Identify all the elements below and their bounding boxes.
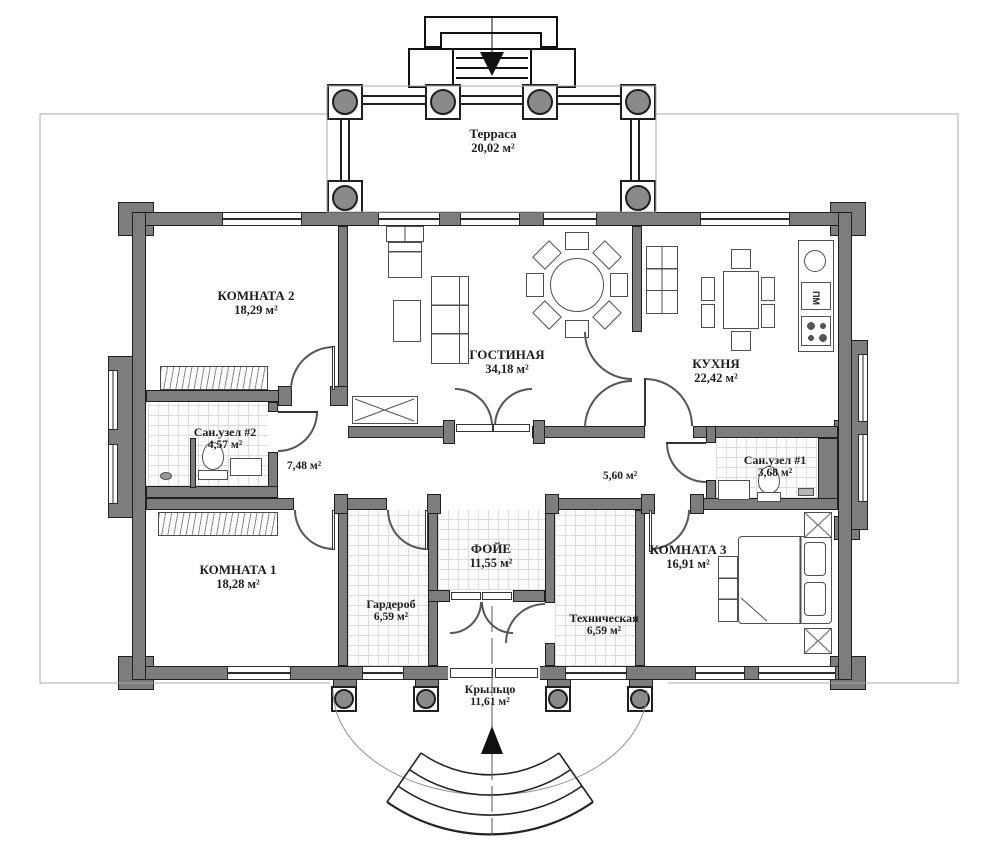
door-arc-living-double — [455, 388, 493, 426]
window — [758, 666, 836, 680]
door-arc-room1 — [294, 510, 334, 550]
room-name: Сан.узел #1 — [744, 453, 806, 467]
room-area: 11,55 м² — [470, 556, 513, 571]
pillow — [804, 582, 826, 616]
wall-corridor-top — [348, 426, 455, 438]
wall-foyer-bottom — [428, 590, 450, 602]
sink — [230, 458, 262, 476]
room-name: Техническая — [569, 611, 638, 625]
chair — [610, 273, 628, 297]
terrace-railing — [340, 120, 350, 180]
window — [695, 666, 745, 680]
terrace-column-circle — [625, 185, 651, 211]
wall-bath1-left — [706, 426, 716, 443]
room-area: 3,68 м² — [744, 467, 806, 481]
tech-floor — [555, 510, 635, 666]
room-area: 4,57 м² — [194, 439, 256, 453]
room-label-porch: Крыльцо 11,61 м² — [465, 682, 516, 710]
chair — [731, 249, 751, 269]
hall-area-left: 7,48 м² — [287, 460, 321, 474]
entrance-door-leaf — [495, 668, 538, 678]
wall-living-kitchen — [632, 226, 642, 332]
room-area: 22,42 м² — [692, 371, 740, 386]
exterior-wall-right — [838, 212, 852, 680]
chair — [592, 300, 622, 330]
kitchen-tall-unit — [646, 246, 678, 314]
porch-column-circle — [630, 689, 650, 709]
floor-plan: ПМ Терраса 20,02 м² КОМНАТ — [0, 0, 1000, 858]
kitchen-table — [723, 271, 759, 329]
room-area: 6,59 м² — [366, 611, 415, 625]
porch-steps — [333, 690, 647, 834]
window — [858, 354, 868, 422]
room-label-terrace: Терраса 20,02 м² — [469, 126, 516, 156]
pillow — [804, 542, 826, 576]
window — [108, 444, 118, 504]
room-name: КОМНАТА 2 — [217, 288, 294, 303]
room-area: 5,60 м² — [603, 470, 637, 484]
door-leaf — [644, 378, 646, 426]
room-area: 20,02 м² — [469, 141, 516, 156]
window — [700, 212, 790, 226]
wall-foyer-bottom — [513, 590, 545, 602]
room-name: ГОСТИНАЯ — [469, 347, 544, 362]
room-label-room1: КОМНАТА 1 18,28 м² — [199, 562, 276, 592]
room-label-wardrobe: Гардероб 6,59 м² — [366, 597, 415, 625]
wall-bath2-right — [268, 402, 278, 412]
wall-corridor-bottom — [146, 498, 294, 510]
terrace-column-circle — [625, 89, 651, 115]
porch-column-circle — [548, 689, 568, 709]
door-leaf — [482, 592, 512, 600]
toilet-tank — [198, 470, 228, 480]
chair — [532, 300, 562, 330]
window — [378, 212, 440, 226]
window — [362, 666, 404, 680]
window — [460, 212, 520, 226]
chair — [761, 277, 775, 301]
wall-bath1-right — [818, 438, 838, 500]
room-name: КУХНЯ — [692, 356, 740, 371]
room-name: КОМНАТА 1 — [199, 562, 276, 577]
room-label-room2: КОМНАТА 2 18,29 м² — [217, 288, 294, 318]
chair — [565, 232, 589, 250]
door-leaf — [278, 411, 318, 413]
wall-corridor-bottom — [545, 498, 648, 510]
wall-pier — [533, 420, 545, 444]
terrace-railing — [461, 95, 522, 105]
door-arc-bath1 — [666, 443, 706, 483]
kitchen-sink — [804, 250, 826, 272]
wall-room2-living — [338, 226, 348, 390]
chair — [731, 331, 751, 351]
wall-pier — [334, 494, 348, 514]
stove — [801, 316, 831, 346]
room-area: 18,28 м² — [199, 577, 276, 592]
dining-table-round — [550, 258, 604, 312]
door-arc-foyer — [450, 602, 482, 634]
chair — [701, 277, 715, 301]
door-arc-room2 — [290, 346, 334, 390]
room-area: 18,29 м² — [217, 303, 294, 318]
room-label-bath1: Сан.узел #1 3,68 м² — [744, 453, 806, 481]
wall-tech-room3 — [635, 510, 645, 666]
bath-accessory — [798, 488, 814, 496]
wall-bath2-bottom — [146, 486, 278, 498]
door-leaf — [666, 442, 706, 444]
dishwasher-label: ПМ — [802, 291, 830, 305]
wall-pier — [427, 494, 441, 514]
nightstand — [804, 512, 832, 538]
nightstand — [804, 628, 832, 654]
room-area: 7,48 м² — [287, 460, 321, 474]
hall-area-right: 5,60 м² — [603, 470, 637, 484]
sink — [718, 480, 750, 500]
room-label-tech: Техническая 6,59 м² — [569, 611, 638, 639]
entrance-door-leaf — [450, 668, 493, 678]
bath-accessory — [160, 472, 172, 480]
room-area: 11,61 м² — [465, 696, 516, 710]
chair — [526, 273, 544, 297]
window — [222, 212, 302, 226]
exterior-wall-left — [132, 212, 146, 680]
terrace-column-circle — [430, 89, 456, 115]
door-leaf — [451, 592, 481, 600]
door-arc-living-kitchen — [584, 332, 632, 380]
room-name: Гардероб — [366, 597, 415, 611]
door-leaf — [456, 424, 493, 432]
armchair — [388, 242, 422, 278]
window — [543, 212, 597, 226]
wall-foyer-tech — [545, 643, 555, 666]
sofa — [431, 276, 469, 364]
porch-column-circle — [416, 689, 436, 709]
chair — [761, 304, 775, 328]
room-area: 16,91 м² — [649, 557, 726, 572]
room-name: КОМНАТА 3 — [649, 542, 726, 557]
room-name: Сан.узел #2 — [194, 425, 256, 439]
door-arc-living-kitchen — [584, 380, 632, 428]
room-label-bath2: Сан.узел #2 4,57 м² — [194, 425, 256, 453]
entry-steps-block-left — [408, 48, 454, 88]
door-arc-living-double — [494, 388, 532, 426]
wall-wardrobe-foyer — [428, 510, 438, 666]
toilet-tank — [757, 492, 781, 502]
window — [227, 666, 291, 680]
room-name: Крыльцо — [465, 682, 516, 696]
terrace-railing — [363, 95, 425, 105]
room-label-living: ГОСТИНАЯ 34,18 м² — [469, 347, 544, 377]
room-name: Терраса — [469, 126, 516, 141]
wall-pier — [690, 494, 704, 514]
window — [108, 370, 118, 430]
terrace-column-circle — [332, 89, 358, 115]
door-leaf — [332, 346, 335, 390]
entry-steps-block-right — [530, 48, 576, 88]
room-name: ФОЙЕ — [470, 541, 513, 556]
terrace-column-circle — [332, 185, 358, 211]
entrance-axis — [481, 606, 503, 835]
built-in-wardrobe — [160, 366, 268, 390]
wall-pier — [443, 420, 455, 444]
wall-pier — [545, 494, 559, 514]
built-in-wardrobe — [158, 512, 278, 536]
room-label-room3: КОМНАТА 3 16,91 м² — [649, 542, 726, 572]
porch-column-circle — [334, 689, 354, 709]
dishwasher: ПМ — [801, 282, 831, 310]
door-leaf — [493, 424, 530, 432]
coffee-table — [393, 300, 421, 342]
terrace-railing — [558, 95, 620, 105]
wall-room1-wardrobe — [338, 510, 348, 666]
room-label-kitchen: КУХНЯ 22,42 м² — [692, 356, 740, 386]
fireplace — [352, 396, 418, 424]
chair — [592, 240, 622, 270]
door-arc-kitchen — [645, 378, 693, 426]
room-area: 34,18 м² — [469, 362, 544, 377]
direction-arrow-down — [480, 52, 504, 76]
room-area: 6,59 м² — [569, 625, 638, 639]
window — [858, 434, 868, 502]
door-leaf — [425, 510, 428, 550]
entry-steps-inner — [440, 32, 542, 50]
room-label-foyer: ФОЙЕ 11,55 м² — [470, 541, 513, 571]
window — [565, 666, 627, 680]
wall-foyer-tech — [545, 510, 555, 603]
terrace-railing — [630, 120, 640, 180]
tv-unit — [386, 226, 424, 242]
wall-room2-bottom — [146, 390, 290, 402]
terrace-column-circle — [527, 89, 553, 115]
chair — [701, 304, 715, 328]
door-leaf — [332, 510, 335, 550]
direction-arrow-up — [481, 726, 503, 754]
door-arc-bath2 — [278, 412, 318, 452]
